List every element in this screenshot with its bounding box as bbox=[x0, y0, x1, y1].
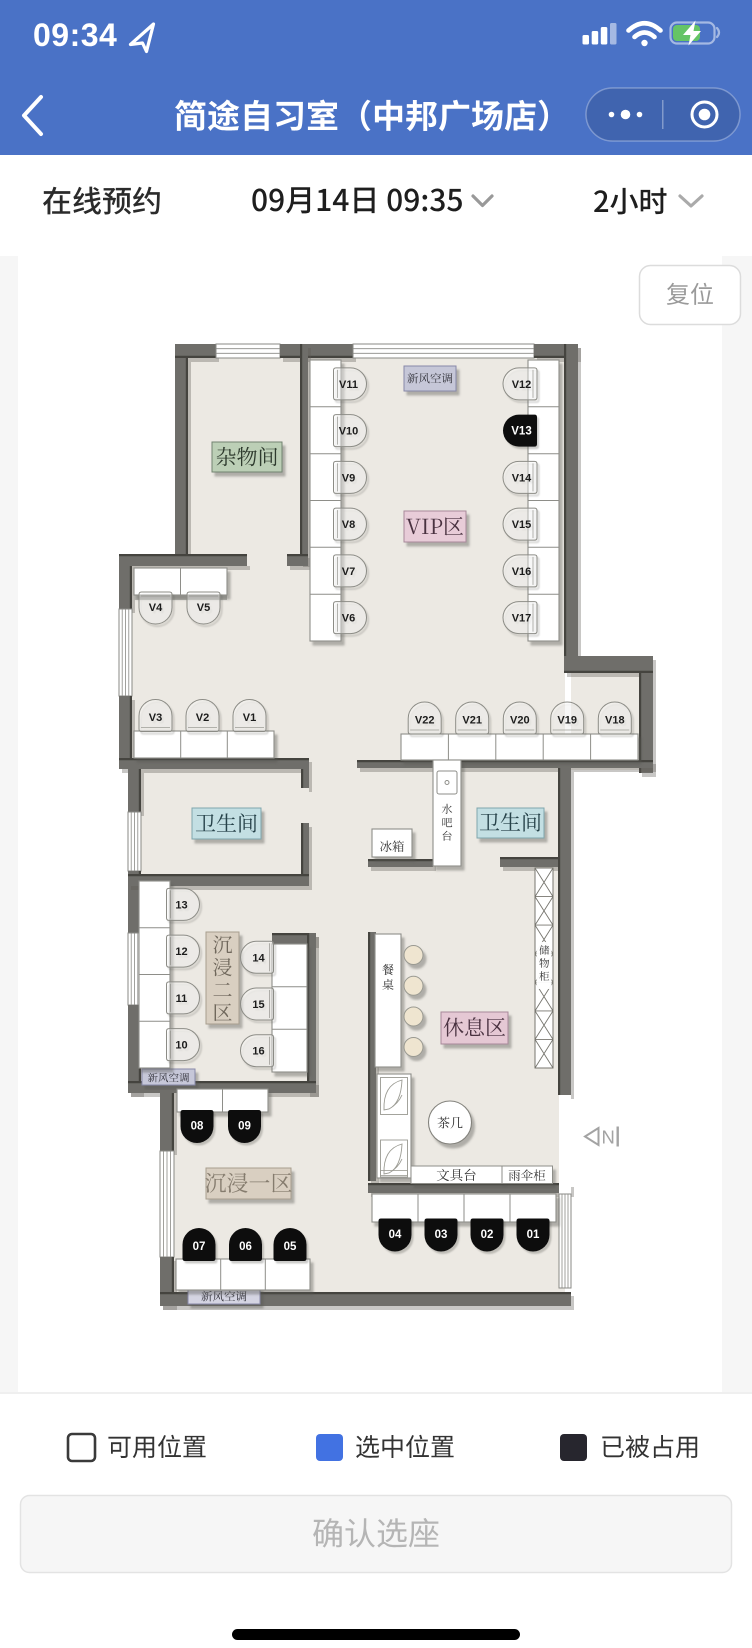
svg-text:V21: V21 bbox=[462, 715, 482, 727]
svg-text:V6: V6 bbox=[342, 613, 355, 625]
svg-text:V4: V4 bbox=[149, 602, 163, 614]
svg-text:V11: V11 bbox=[339, 379, 358, 391]
svg-text:V7: V7 bbox=[342, 566, 355, 578]
svg-text:V13: V13 bbox=[511, 426, 531, 438]
svg-text:V14: V14 bbox=[512, 472, 532, 484]
svg-text:V3: V3 bbox=[149, 712, 162, 724]
svg-text:V17: V17 bbox=[512, 613, 532, 625]
svg-text:N: N bbox=[602, 1127, 615, 1148]
svg-text:11: 11 bbox=[176, 993, 188, 1005]
svg-text:06: 06 bbox=[239, 1241, 252, 1253]
svg-text:V10: V10 bbox=[339, 426, 359, 438]
svg-text:10: 10 bbox=[175, 1040, 187, 1052]
svg-text:V20: V20 bbox=[510, 715, 530, 727]
svg-text:04: 04 bbox=[389, 1229, 402, 1241]
svg-text:09: 09 bbox=[238, 1121, 251, 1133]
svg-text:V22: V22 bbox=[415, 715, 435, 727]
svg-text:V9: V9 bbox=[342, 472, 355, 484]
svg-text:V2: V2 bbox=[196, 712, 209, 724]
svg-text:07: 07 bbox=[193, 1241, 206, 1253]
svg-text:08: 08 bbox=[191, 1121, 204, 1133]
svg-text:03: 03 bbox=[435, 1229, 448, 1241]
svg-text:14: 14 bbox=[252, 952, 265, 964]
svg-text:12: 12 bbox=[175, 946, 187, 958]
svg-text:V5: V5 bbox=[197, 602, 210, 614]
svg-text:V18: V18 bbox=[605, 715, 625, 727]
svg-text:15: 15 bbox=[252, 999, 264, 1011]
svg-text:V15: V15 bbox=[512, 519, 532, 531]
svg-text:05: 05 bbox=[284, 1241, 297, 1253]
svg-text:V8: V8 bbox=[342, 519, 355, 531]
svg-text:09:34: 09:34 bbox=[33, 17, 117, 53]
svg-text:16: 16 bbox=[252, 1046, 264, 1058]
svg-text:V19: V19 bbox=[557, 715, 577, 727]
svg-text:01: 01 bbox=[527, 1229, 540, 1241]
svg-text:V16: V16 bbox=[512, 566, 532, 578]
svg-text:V12: V12 bbox=[512, 379, 532, 391]
svg-text:V1: V1 bbox=[243, 712, 256, 724]
svg-text:02: 02 bbox=[481, 1229, 494, 1241]
svg-text:13: 13 bbox=[175, 899, 187, 911]
